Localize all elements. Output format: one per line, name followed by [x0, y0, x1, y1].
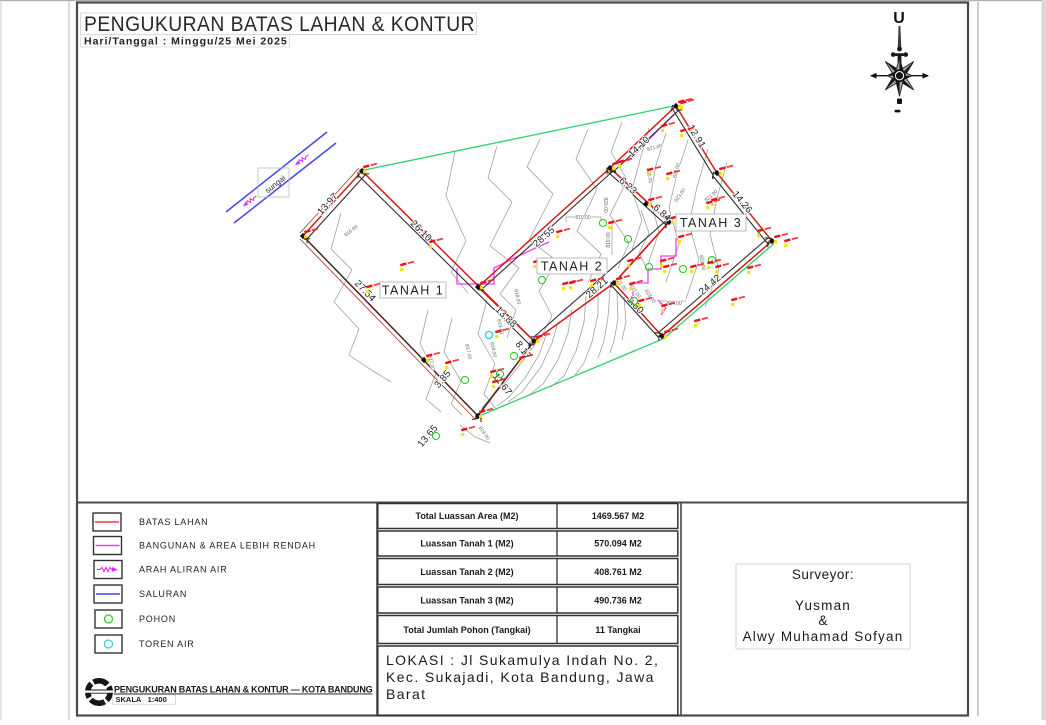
svg-text:TANAH 3: TANAH 3 — [680, 216, 742, 230]
svg-text:PENGUKURAN BATAS LAHAN & KONTU: PENGUKURAN BATAS LAHAN & KONTUR — [84, 13, 475, 36]
svg-text:SKALA 1:400: SKALA 1:400 — [116, 695, 167, 704]
svg-text:819.00: 819.00 — [575, 215, 591, 221]
svg-text:&: & — [818, 613, 827, 628]
svg-text:BANGUNAN & AREA LEBIH RENDAH: BANGUNAN & AREA LEBIH RENDAH — [139, 541, 316, 551]
svg-text:820.00: 820.00 — [602, 197, 608, 213]
svg-text:Alwy Muhamad Sofyan: Alwy Muhamad Sofyan — [743, 629, 904, 644]
svg-text:1469.567 M2: 1469.567 M2 — [592, 511, 645, 521]
svg-text:Luassan Tanah 2 (M2): Luassan Tanah 2 (M2) — [420, 567, 513, 577]
svg-text:PENGUKURAN BATAS LAHAN & KONTU: PENGUKURAN BATAS LAHAN & KONTUR — KOTA B… — [114, 685, 373, 695]
svg-text:U: U — [893, 10, 905, 27]
svg-text:LOKASI : Jl Sukamulya Indah No: LOKASI : Jl Sukamulya Indah No. 2, — [386, 652, 659, 668]
svg-text:POHON: POHON — [139, 614, 176, 624]
svg-text:ARAH ALIRAN AIR: ARAH ALIRAN AIR — [139, 565, 228, 575]
svg-text:TANAH 2: TANAH 2 — [541, 260, 603, 274]
svg-text:408.761 M2: 408.761 M2 — [594, 567, 642, 577]
svg-text:Kec. Sukajadi, Kota Bandung, J: Kec. Sukajadi, Kota Bandung, Jawa — [386, 669, 655, 685]
svg-text:Surveyor:: Surveyor: — [792, 567, 854, 582]
svg-text:Yusman: Yusman — [795, 598, 851, 613]
svg-text:Barat: Barat — [386, 686, 426, 702]
svg-text:Hari/Tanggal : Minggu/25 Mei 2: Hari/Tanggal : Minggu/25 Mei 2025 — [84, 36, 288, 48]
svg-text:SALURAN: SALURAN — [139, 589, 187, 599]
svg-text:BATAS LAHAN: BATAS LAHAN — [139, 517, 208, 527]
svg-text:Luassan Tanah 3 (M2): Luassan Tanah 3 (M2) — [420, 596, 513, 606]
svg-text:Total Jumlah Pohon (Tangkai): Total Jumlah Pohon (Tangkai) — [403, 625, 530, 635]
svg-text:TOREN AIR: TOREN AIR — [139, 639, 195, 649]
svg-text:11 Tangkai: 11 Tangkai — [595, 625, 640, 635]
svg-text:Luassan Tanah 1 (M2): Luassan Tanah 1 (M2) — [420, 539, 513, 549]
svg-text:570.094 M2: 570.094 M2 — [594, 539, 642, 549]
svg-text:490.736 M2: 490.736 M2 — [594, 596, 642, 606]
svg-text:Total Luassan Area (M2): Total Luassan Area (M2) — [415, 511, 518, 521]
svg-text:TANAH 1: TANAH 1 — [382, 284, 444, 298]
svg-text:819.00: 819.00 — [606, 232, 612, 248]
